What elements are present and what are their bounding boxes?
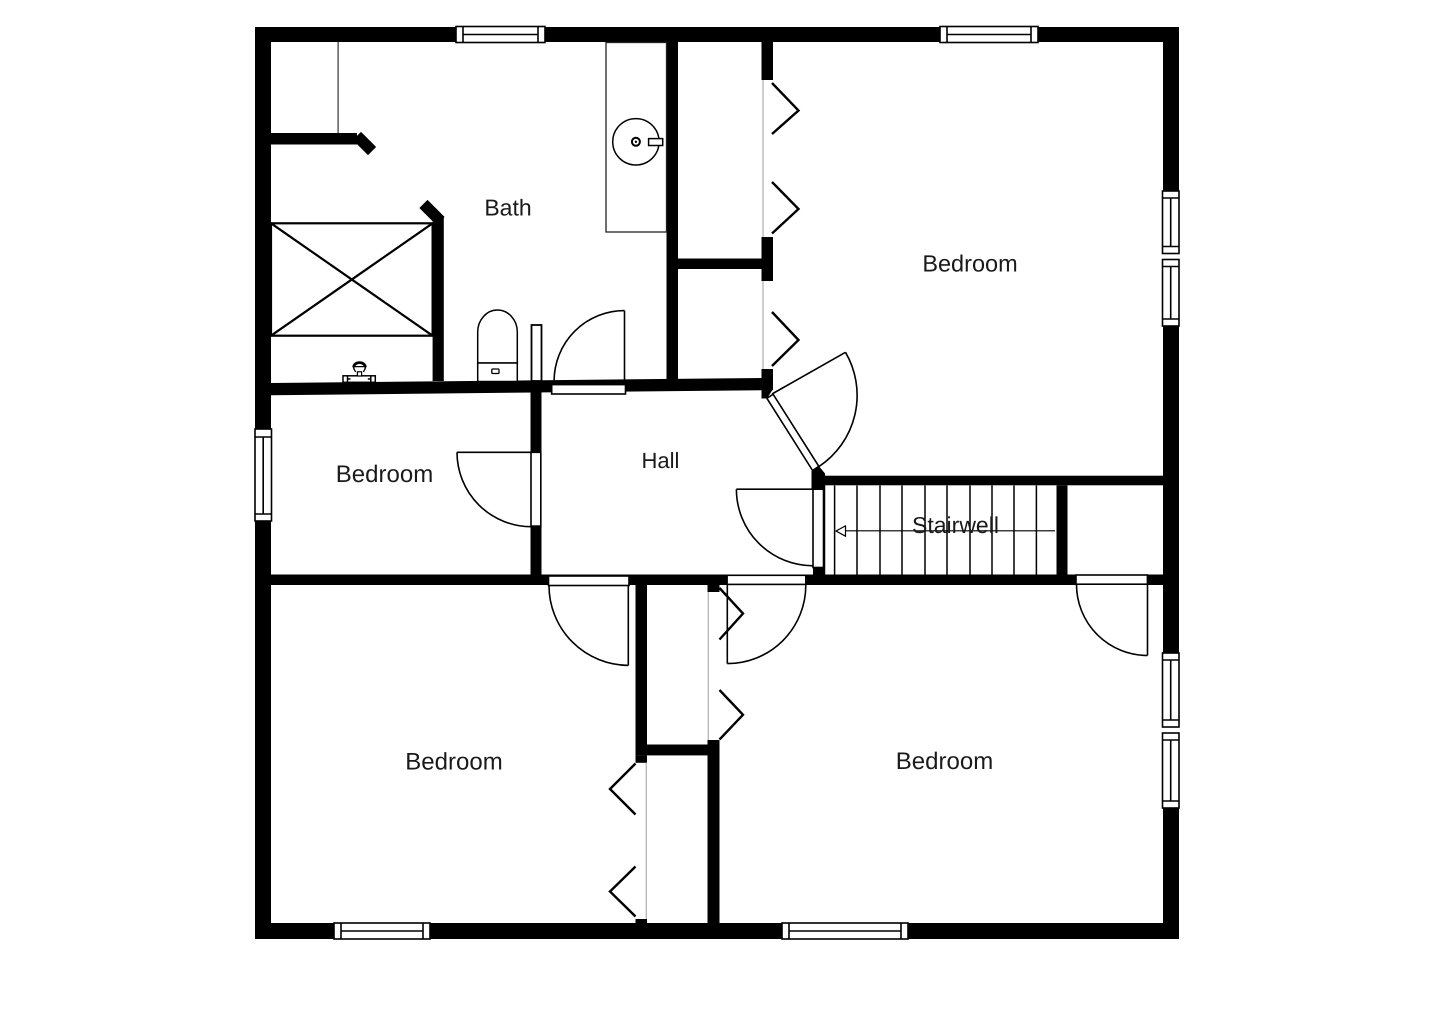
svg-text:Bedroom: Bedroom — [405, 749, 502, 776]
svg-text:Bedroom: Bedroom — [922, 251, 1017, 277]
svg-text:Bath: Bath — [484, 195, 531, 221]
svg-text:Hall: Hall — [642, 448, 680, 473]
svg-text:Stairwell: Stairwell — [912, 512, 999, 538]
svg-text:Bedroom: Bedroom — [896, 748, 993, 775]
svg-text:Bedroom: Bedroom — [336, 461, 433, 488]
